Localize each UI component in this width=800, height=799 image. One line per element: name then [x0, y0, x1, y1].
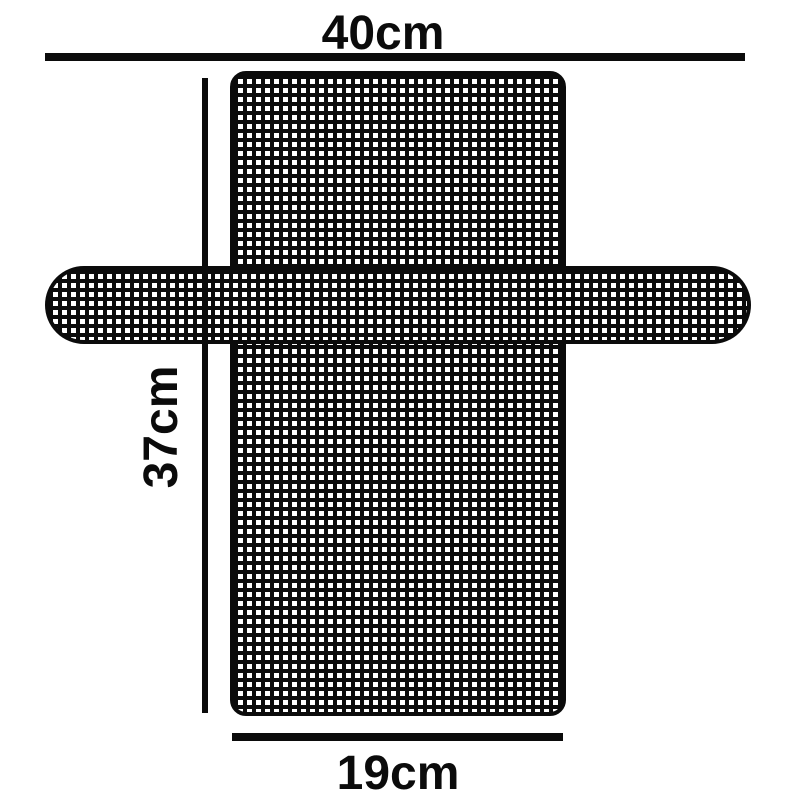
top-width-label: 40cm [322, 10, 445, 58]
side-height-dimension-line [202, 78, 208, 713]
mesh-main-panel [230, 71, 566, 716]
bottom-width-dimension-line [232, 733, 563, 741]
dimension-diagram: 40cm 37cm 19cm [0, 0, 800, 799]
side-height-label: 37cm [138, 366, 186, 489]
bottom-width-label: 19cm [337, 750, 460, 798]
mesh-side-strap [45, 266, 751, 344]
top-width-dimension-line [45, 53, 745, 61]
